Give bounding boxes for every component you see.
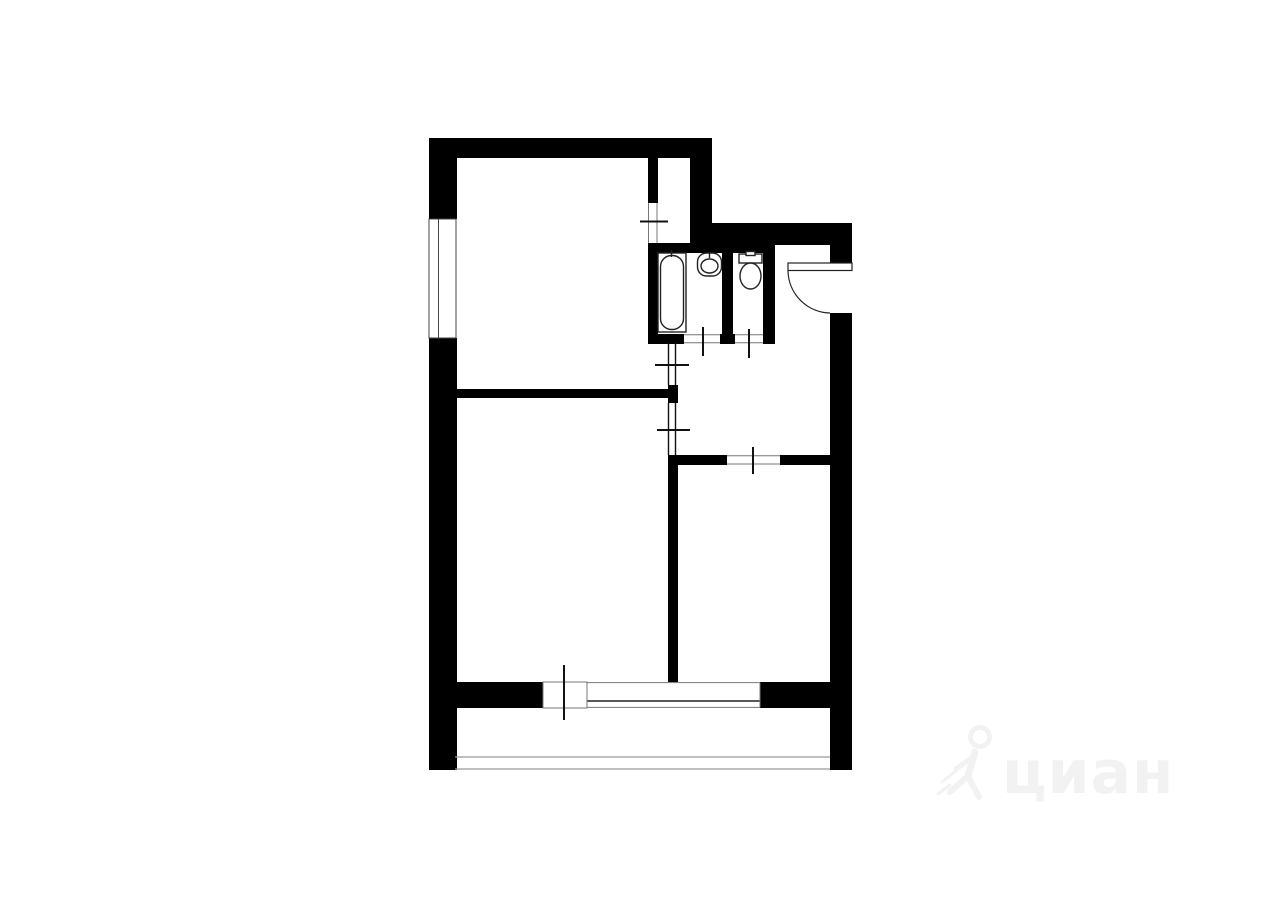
hall-top-wall-outer xyxy=(690,223,852,245)
left-wall-upper xyxy=(429,138,457,219)
sanitary-block-top-wall xyxy=(648,243,775,253)
toilet-right-wall xyxy=(763,253,775,344)
hall-partition-block xyxy=(668,385,678,403)
floorplan: циан xyxy=(0,0,1280,905)
bath-toilet-divider xyxy=(722,253,733,334)
bathtub-inner xyxy=(661,256,684,330)
entrance-door-leaf xyxy=(788,263,852,271)
entrance-door-swing-arc xyxy=(788,271,830,313)
floorplan-image: циан xyxy=(0,0,1280,905)
right-wall-lower xyxy=(830,313,852,770)
walking-person-icon xyxy=(950,776,968,792)
bottom-wall-left xyxy=(455,682,543,708)
walking-person-icon-head xyxy=(971,728,990,747)
rooms-divider-wall xyxy=(429,389,668,398)
sink-bowl xyxy=(701,259,718,273)
closet-partition xyxy=(648,158,658,203)
bathroom-left-wall xyxy=(648,253,658,343)
walking-person-icon xyxy=(968,776,979,797)
bottom-wall-right xyxy=(760,682,830,708)
rooms-divider-vertical xyxy=(668,455,678,682)
walking-person-icon xyxy=(942,770,957,782)
divider-bottom-seg xyxy=(720,334,735,344)
hall-room-wall-right xyxy=(780,455,830,465)
right-wall-upper xyxy=(830,245,852,263)
watermark-text: циан xyxy=(1002,738,1174,808)
toilet-button xyxy=(746,252,755,256)
left-wall-window xyxy=(429,219,456,338)
left-wall-lower xyxy=(429,338,457,770)
bathroom-bottom-seg xyxy=(648,334,684,344)
top-wall-outer xyxy=(429,138,712,158)
toilet-bowl xyxy=(740,263,761,289)
